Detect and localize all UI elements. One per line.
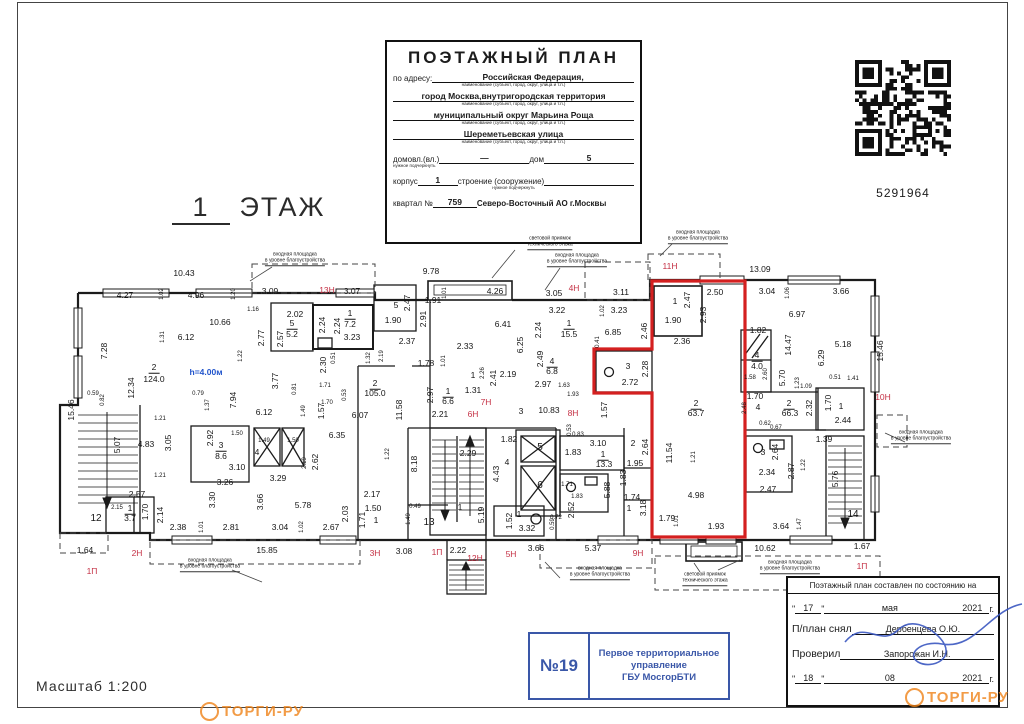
plan-label: 7.94 [229, 392, 238, 409]
plan-label: 13Н [319, 286, 335, 295]
plan-label: 2 [149, 363, 160, 374]
plan-annotation: входная площадка в уровне благоустройств… [547, 253, 607, 267]
plan-label: 7Н [481, 398, 492, 407]
plan-label: 1.31 [465, 386, 482, 395]
plan-label: 2 [631, 439, 636, 448]
plan-annotation: входная площадка в уровне благоустройств… [265, 252, 325, 266]
plan-label: 2.47 [760, 485, 777, 494]
plan-label: 15.85 [256, 546, 277, 555]
plan-label: h=4.00м [190, 368, 223, 377]
plan-label: 1.49 [258, 438, 270, 444]
plan-label: 6.8 [546, 367, 558, 376]
plan-label: 7.28 [100, 343, 109, 360]
plan-label: 6.85 [605, 328, 622, 337]
plan-annotation: входная площадка в уровне благоустройств… [180, 558, 240, 572]
plan-label: 5.18 [835, 340, 852, 349]
plan-label: 11.58 [395, 400, 404, 421]
plan-label: 1 [374, 516, 379, 525]
plan-label: 13.3 [596, 460, 613, 469]
watermark-right: ТОРГИ-РУ [905, 688, 1009, 707]
watermark-text: ТОРГИ-РУ [927, 689, 1009, 706]
plan-label: 10.62 [754, 544, 775, 553]
watermark-text: ТОРГИ-РУ [222, 703, 304, 720]
plan-label: 3.66 [528, 544, 545, 553]
plan-label: 3.10 [229, 463, 246, 472]
plan-label: 3.66 [833, 287, 850, 296]
plan-label: 14 [847, 510, 858, 520]
plan-label: 2.36 [674, 337, 691, 346]
plan-label: 1.71 [358, 512, 367, 529]
plan-label: 2.77 [257, 330, 266, 347]
plan-label: 1.57 [600, 402, 609, 419]
plan-label: 1.67 [854, 542, 871, 551]
plan-label: 4.83 [138, 440, 155, 449]
plan-label: 1.01 [441, 355, 447, 367]
plan-label: 5.19 [477, 507, 486, 524]
plan-label: 0.62 [759, 421, 771, 427]
plan-label: 2.24 [333, 318, 342, 335]
plan-label: 1.63 [558, 383, 570, 389]
plan-label: 1.70 [824, 395, 833, 412]
plan-label: 2.47 [683, 292, 692, 309]
plan-label: 2.97 [426, 387, 435, 404]
plan-label: 1.83 [565, 448, 582, 457]
plan-annotation: входная площадка в уровне благоустройств… [570, 566, 630, 580]
plan-label: 2.14 [156, 507, 165, 524]
plan-annotation: входная площадка в уровне благоустройств… [668, 230, 728, 244]
plan-label: 1П [432, 548, 443, 557]
plan-label: 5.37 [585, 544, 602, 553]
plan-label: 2.44 [835, 416, 852, 425]
plan-label: 1.90 [385, 316, 402, 325]
plan-label: 6Н [468, 410, 479, 419]
plan-label: 1.22 [385, 448, 391, 460]
plan-label: 6.6 [442, 397, 454, 406]
plan-label: 1 [564, 319, 575, 330]
plan-label: 3.11 [613, 288, 629, 297]
plan-label: 0.83 [572, 432, 584, 438]
date1-month: мая [824, 603, 955, 614]
plan-label: 2Н [132, 549, 143, 558]
plan-label: 63.7 [688, 409, 705, 418]
plan-label: 4.98 [688, 491, 705, 500]
plan-label: 4.26 [487, 287, 504, 296]
plan-label: 0.51 [829, 375, 841, 381]
plan-label: 15.46 [876, 340, 885, 361]
plan-label: 3 [216, 441, 227, 452]
plan-label: 3.09 [262, 287, 279, 296]
plan-label: 1.83 [571, 494, 583, 500]
survey-header: Поэтажный план составлен по состоянию на [788, 578, 998, 594]
plan-label: 1.21 [154, 416, 166, 422]
plan-label: 1 [673, 297, 678, 306]
plan-label: 6.07 [352, 411, 369, 420]
date2-day: 18 [795, 673, 821, 684]
plan-label: 15.46 [67, 399, 76, 420]
plan-label: 2.62 [311, 454, 320, 471]
plan-label: 10.43 [173, 269, 194, 278]
plan-label: 1.39 [816, 435, 833, 444]
plan-label: 5 [287, 319, 298, 330]
plan-label: 4.43 [492, 466, 501, 483]
plan-label: 1 [471, 371, 476, 380]
plan-label: 2.38 [170, 523, 187, 532]
plan-label: 1.47 [797, 518, 803, 530]
plan-label: 3.08 [396, 547, 413, 556]
plan-label: 2.64 [771, 444, 780, 461]
plan-label: 0.59 [87, 391, 99, 397]
plan-label: 12 [90, 514, 101, 524]
plan-label: 2.48 [742, 402, 748, 414]
plan-label: 0.51 [331, 352, 337, 364]
stamp-line2: управление [631, 660, 687, 672]
plan-label: 1.49 [406, 513, 412, 525]
plan-label: 5.76 [831, 471, 840, 488]
stamp-number: №19 [530, 634, 590, 698]
plan-label: 1.09 [800, 384, 812, 390]
bti-floor-plan-sheet: 1 ЭТАЖ ПОЭТАЖНЫЙ ПЛАН по адресу: Российс… [0, 0, 1024, 724]
plan-label: 2.33 [457, 342, 474, 351]
plan-label: 1.22 [238, 350, 244, 362]
plan-label: 2.21 [432, 410, 449, 419]
plan-annotation: входная площадка в уровне благоустройств… [891, 430, 951, 444]
plan-label: 10Н [875, 393, 891, 402]
plan-label: 0.81 [292, 383, 298, 395]
plan-label: 1.71 [319, 383, 331, 389]
plan-label: 2.41 [489, 370, 498, 387]
plan-label: 2.52 [567, 502, 576, 519]
plan-label: 1.90 [665, 316, 682, 325]
date1-suffix: г. [989, 604, 994, 614]
plan-label: 0.49 [409, 504, 421, 510]
plan-label: 66.3 [782, 409, 799, 418]
plan-label: 1.37 [205, 399, 211, 411]
plan-label: 4 [505, 458, 510, 467]
plan-label: 2.03 [341, 506, 350, 523]
plan-label: 1.02 [159, 288, 165, 300]
plan-label: 10.66 [209, 318, 230, 327]
plan-label: 1.01 [442, 287, 448, 299]
plan-label: 2.32 [805, 400, 814, 417]
plan-label: 1.32 [366, 352, 372, 364]
plan-label: 1.52 [505, 513, 514, 530]
date2-month: 08 [824, 673, 955, 684]
plan-label: 5.2 [286, 330, 298, 339]
plan-label: 1.83 [619, 470, 628, 487]
plan-label: 2.92 [206, 430, 215, 447]
plan-label: 124.0 [143, 375, 164, 384]
plan-label: 3.32 [519, 524, 536, 533]
date2-year: 2021 [955, 673, 989, 684]
plan-label: 6.97 [789, 310, 806, 319]
plan-label: 1.02 [600, 305, 606, 317]
plan-label: 2.67 [323, 523, 340, 532]
checker-name: Запорожан И.Н. [840, 649, 994, 660]
plan-label: 0.41 [595, 336, 601, 348]
plan-label: 2.19 [500, 370, 517, 379]
plan-label: 1.70 [141, 504, 150, 521]
plan-label: 2.34 [759, 468, 776, 477]
plan-label: 1.01 [674, 515, 680, 527]
plan-label: 5.88 [603, 482, 612, 499]
plan-label: 7.2 [344, 320, 356, 329]
plan-label: 2.24 [534, 322, 543, 339]
plan-label: 6.29 [817, 350, 826, 367]
plan-label: 2.17 [364, 490, 381, 499]
plan-label: 5.07 [113, 437, 122, 454]
plan-label: 3.05 [164, 435, 173, 452]
plan-label: 105.0 [364, 389, 385, 398]
plan-label: 3.29 [270, 474, 287, 483]
plan-label: 1.78 [418, 359, 435, 368]
plan-annotation: световой приямок технического этажа [527, 236, 572, 250]
plan-label: 0.82 [100, 394, 106, 406]
plan-label: 6 [537, 481, 543, 491]
plan-label: 2.26 [480, 367, 486, 379]
plan-label: 1.20 [231, 288, 237, 300]
plan-label: 2.29 [460, 449, 477, 458]
plan-label: 5 [394, 301, 399, 310]
plan-label: 3.30 [208, 492, 217, 509]
plan-label: 15.5 [561, 330, 578, 339]
plan-label: 1.70 [747, 392, 764, 401]
plan-label: 3 [761, 448, 766, 457]
plan-label: 2.24 [318, 317, 327, 334]
plan-label: 6.41 [495, 320, 512, 329]
plan-label: 3.77 [271, 373, 280, 390]
plan-label: 1.91 [425, 296, 442, 305]
plan-label: 1.21 [154, 473, 166, 479]
watermark-logo-icon [905, 688, 924, 707]
plan-label: 5.70 [778, 370, 787, 387]
date1-day: 17 [795, 603, 821, 614]
plan-label: 9Н [633, 549, 644, 558]
plan-label: 2.37 [399, 337, 416, 346]
plan-label: 3.23 [611, 306, 628, 315]
plan-label: 5.78 [295, 501, 312, 510]
plan-label: 2.49 [536, 351, 545, 368]
plan-label: 2.46 [640, 323, 649, 340]
plan-label: 1.93 [567, 392, 579, 398]
surveyor-name: Дербенцева О.Ю. [852, 624, 994, 635]
plan-label: 4.96 [188, 291, 205, 300]
plan-label: 12Н [467, 554, 483, 563]
plan-label: 1.82 [501, 435, 518, 444]
plan-label: 2.72 [622, 378, 639, 387]
plan-label: 3Н [370, 549, 381, 558]
plan-label: 11.54 [665, 443, 674, 464]
plan-label: 1.02 [299, 521, 305, 533]
plan-label: 1.82 [750, 326, 767, 335]
plan-label: 0.67 [770, 425, 782, 431]
plan-label: 2.97 [535, 380, 552, 389]
plan-label: 2.87 [787, 463, 796, 480]
plan-label: 1 [458, 503, 463, 512]
plan-label: 2.22 [450, 546, 467, 555]
plan-label: 1.58 [744, 375, 756, 381]
plan-label: 11Н [663, 262, 678, 271]
plan-label: 1.71 [561, 482, 573, 488]
plan-label: 2.15 [111, 505, 123, 511]
plan-label: 5 [537, 443, 543, 453]
plan-label: 1П [87, 567, 98, 576]
plan-label: 8.6 [215, 452, 227, 461]
plan-label: 3.07 [344, 287, 361, 296]
plan-label: 3 [626, 362, 631, 371]
plan-label: 13.09 [749, 265, 770, 274]
plan-label: 1.64 [77, 546, 94, 555]
plan-label: 2.19 [302, 457, 308, 469]
plan-label: 5Н [506, 550, 517, 559]
surveyor-label: П/план снял [792, 623, 852, 635]
plan-label: 3 [519, 407, 524, 416]
plan-label: 6.35 [329, 431, 346, 440]
plan-label: 3.04 [272, 523, 289, 532]
watermark-logo-icon [200, 702, 219, 721]
plan-label: 4.0 [751, 362, 763, 371]
plan-label: 12.34 [127, 377, 136, 398]
plan-label: 13 [423, 518, 434, 528]
date2-suffix: г. [989, 674, 994, 684]
plan-label: 1.95 [627, 459, 644, 468]
plan-label: 3.64 [773, 522, 790, 531]
plan-label: 2.19 [379, 350, 385, 362]
plan-label: 2.60 [763, 368, 769, 380]
date1-year: 2021 [955, 603, 989, 614]
plan-label: 1.93 [708, 522, 725, 531]
plan-label: 1.06 [785, 287, 791, 299]
plan-label: 1 [517, 510, 522, 519]
plan-label: 3.22 [549, 306, 566, 315]
plan-label: 1.31 [160, 331, 166, 343]
plan-label: 1П [857, 562, 868, 571]
plan-label: 3.05 [546, 289, 563, 298]
plan-label: 9.78 [423, 267, 440, 276]
plan-label: 3.66 [256, 494, 265, 511]
watermark-left: ТОРГИ-РУ [200, 702, 304, 721]
plan-label: 0.79 [192, 391, 204, 397]
plan-label: 8.18 [410, 456, 419, 473]
plan-label: 3.7 [124, 514, 136, 523]
plan-label: 1 [345, 309, 356, 320]
plan-label: 2.28 [641, 361, 650, 378]
plan-label: 2.93 [699, 307, 708, 324]
plan-label: 1.57 [317, 403, 326, 420]
plan-label: 6.12 [178, 333, 195, 342]
plan-label: 6.12 [256, 408, 273, 417]
plan-label: 1.16 [247, 307, 259, 313]
plan-label: 4 [756, 403, 761, 412]
plan-label: 4 [752, 351, 763, 362]
stamp-line3: ГБУ МосгорБТИ [622, 672, 696, 684]
plan-label: 4.27 [117, 291, 134, 300]
plan-label: 3.04 [759, 287, 776, 296]
plan-label: 3.18 [639, 500, 648, 517]
plan-label: 2.57 [129, 490, 146, 499]
bti-stamp: №19 Первое территориальное управление ГБ… [528, 632, 730, 700]
plan-label: 2.64 [641, 439, 650, 456]
plan-label: 2.91 [419, 311, 428, 328]
plan-label: 1.50 [365, 504, 382, 513]
plan-label: 3.10 [590, 439, 607, 448]
plan-label: 3.23 [344, 333, 361, 342]
plan-annotation: входная площадка в уровне благоустройств… [760, 560, 820, 574]
plan-label: 6.25 [516, 337, 525, 354]
plan-label: 1.22 [801, 459, 807, 471]
checker-label: Проверил [792, 648, 840, 660]
plan-label: 1.01 [199, 521, 205, 533]
plan-label: 3.26 [217, 478, 234, 487]
plan-label: 2.50 [707, 288, 724, 297]
plan-label: 1.41 [847, 376, 859, 382]
plan-label: 14.47 [784, 334, 793, 355]
plan-label: 4 [255, 448, 260, 457]
scale-label: Масштаб 1:200 [36, 678, 148, 694]
plan-label: 4Н [569, 284, 580, 293]
plan-label: 1 [839, 402, 844, 411]
plan-label: 2.47 [403, 295, 412, 312]
plan-label: 1.79 [659, 514, 676, 523]
plan-label: 1.50 [231, 431, 243, 437]
plan-label: 1 [627, 504, 632, 513]
plan-label: 0.53 [342, 389, 348, 401]
plan-label: 0.59 [550, 518, 556, 530]
plan-annotation: световой приямок технического этажа [682, 572, 727, 586]
plan-label: 10.83 [538, 406, 559, 415]
plan-label: 2.30 [319, 357, 328, 374]
plan-label: 8Н [568, 409, 579, 418]
plan-label: 1.50 [287, 438, 299, 444]
plan-label: 1.21 [691, 451, 697, 463]
stamp-line1: Первое территориальное [599, 648, 720, 660]
plan-label: 1.49 [301, 405, 307, 417]
plan-label: 2.57 [276, 331, 285, 348]
plan-label: 2.81 [223, 523, 240, 532]
